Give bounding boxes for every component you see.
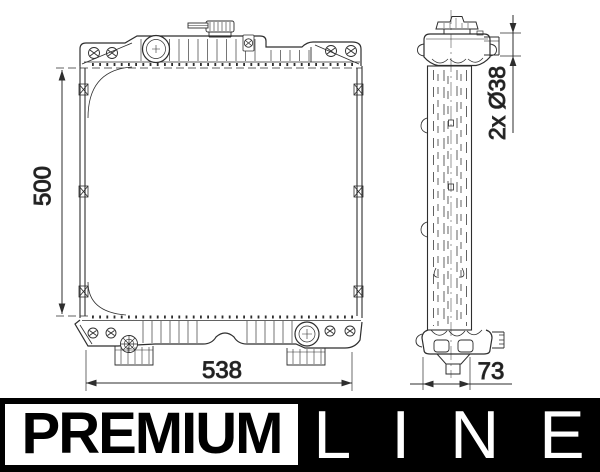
- premium-label: PREMIUM: [22, 405, 282, 463]
- filler-cap: [188, 21, 234, 37]
- screw-icon: [326, 46, 357, 57]
- screw-icon: [88, 328, 116, 338]
- radiator-technical-drawing-page: 500 538 2x Ø38 73: [0, 0, 600, 472]
- dimension-width-label: 538: [202, 357, 242, 384]
- radiator-side-view: [416, 10, 504, 378]
- dimension-depth-label: 73: [478, 358, 505, 385]
- dimension-height-label: 500: [29, 166, 56, 206]
- screw-icon: [89, 48, 118, 59]
- dimension-pipe-label: 2x Ø38: [484, 66, 510, 140]
- dimension-height: [56, 68, 362, 316]
- outlet-pipe-side: [492, 332, 504, 348]
- screw-icon: [325, 326, 355, 336]
- line-label: LINE: [313, 401, 600, 469]
- vent-detail: [243, 35, 254, 51]
- dimension-annotations: 500 538 2x Ø38 73: [29, 15, 521, 391]
- pressure-cap: [436, 17, 478, 35]
- side-clip: [79, 84, 363, 297]
- outlet-port: [295, 322, 319, 346]
- premium-line-banner: PREMIUM LINE: [0, 398, 600, 472]
- drain-funnel: [437, 354, 470, 374]
- filler-neck: [143, 36, 170, 63]
- premium-badge: PREMIUM: [5, 404, 298, 465]
- radiator-drawing: 500 538 2x Ø38 73: [0, 0, 600, 398]
- line-badge: LINE: [298, 398, 600, 472]
- radiator-front-view: [75, 21, 363, 365]
